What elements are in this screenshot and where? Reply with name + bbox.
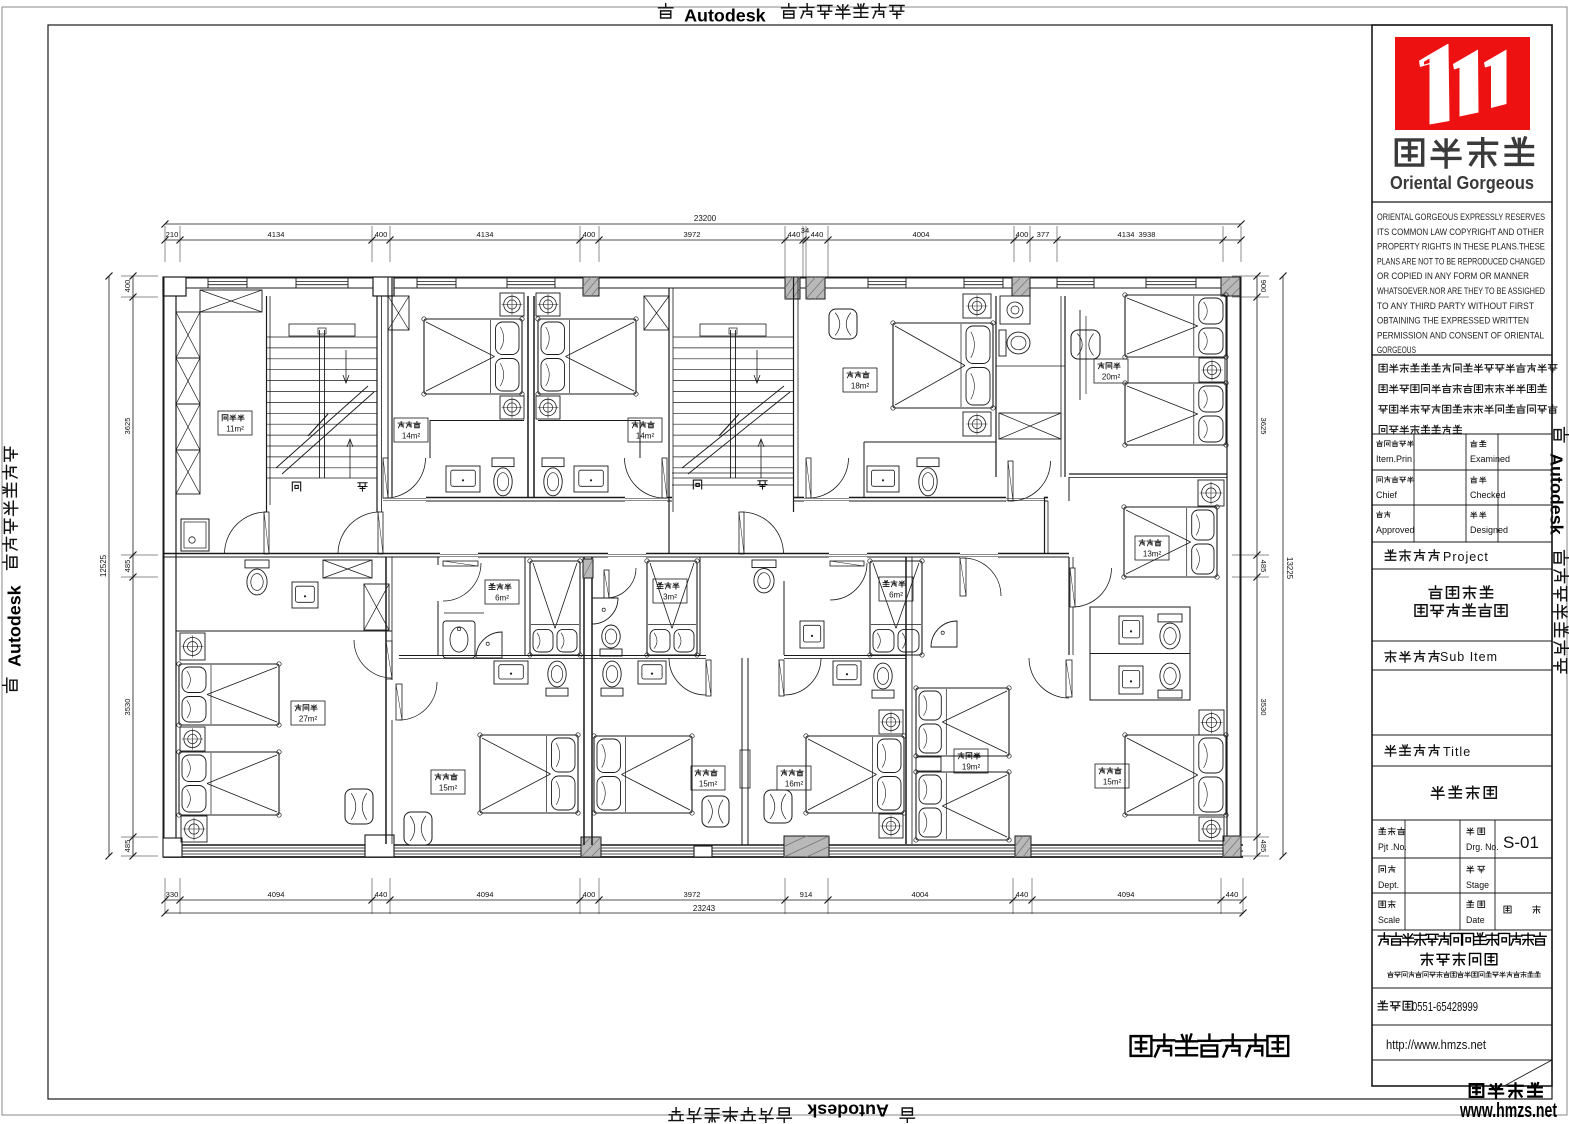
svg-text:4094: 4094: [1118, 890, 1135, 899]
svg-text:440: 440: [811, 230, 824, 239]
svg-text:ITS COMMON LAW COPYRIGHT AND O: ITS COMMON LAW COPYRIGHT AND OTHER: [1377, 227, 1544, 237]
svg-text:Pjt .No.: Pjt .No.: [1378, 842, 1407, 852]
svg-text:20m²: 20m²: [1102, 373, 1121, 382]
svg-text:OR COPIED IN ANY FORM OR MANNE: OR COPIED IN ANY FORM OR MANNER: [1377, 271, 1529, 281]
svg-text:Examined: Examined: [1470, 454, 1510, 464]
svg-text:Autodesk: Autodesk: [684, 5, 766, 25]
svg-text:TO ANY THIRD PARTY WITHOUT FIR: TO ANY THIRD PARTY WITHOUT FIRST: [1377, 301, 1535, 311]
svg-text:Drg. No.: Drg. No.: [1466, 842, 1499, 852]
svg-text:Autodesk: Autodesk: [1547, 453, 1567, 535]
svg-text:Scale: Scale: [1378, 915, 1400, 925]
svg-text:6m²: 6m²: [889, 591, 903, 600]
svg-text:3972: 3972: [684, 230, 701, 239]
svg-text:34: 34: [801, 226, 809, 235]
svg-text:4134: 4134: [1118, 230, 1135, 239]
svg-text:23200: 23200: [694, 214, 717, 223]
svg-text:PERMISSION AND CONSENT OF ORIE: PERMISSION AND CONSENT OF ORIENTAL: [1377, 330, 1544, 340]
svg-text:440: 440: [375, 890, 388, 899]
svg-text:23243: 23243: [693, 904, 716, 913]
svg-text:3530: 3530: [1259, 699, 1268, 716]
svg-text:0551-65428999: 0551-65428999: [1412, 999, 1478, 1014]
svg-text:3625: 3625: [123, 418, 132, 435]
svg-text:485: 485: [123, 560, 132, 573]
svg-text:Autodesk: Autodesk: [807, 1101, 889, 1121]
svg-text:Oriental Gorgeous: Oriental Gorgeous: [1390, 173, 1534, 193]
svg-text:4094: 4094: [477, 890, 494, 899]
svg-text:330: 330: [166, 890, 179, 899]
svg-text:210: 210: [166, 230, 179, 239]
svg-text:GORGEOUS: GORGEOUS: [1377, 345, 1416, 355]
svg-text:13225: 13225: [1285, 557, 1294, 580]
svg-text:440: 440: [1226, 890, 1239, 899]
svg-text:400: 400: [123, 280, 132, 293]
svg-text:377: 377: [1037, 230, 1050, 239]
svg-text:15m²: 15m²: [439, 784, 458, 793]
svg-text:PLANS ARE NOT TO BE REPRODUCED: PLANS ARE NOT TO BE REPRODUCED CHANGED: [1377, 256, 1545, 266]
svg-text:400: 400: [375, 230, 388, 239]
svg-text:400: 400: [583, 230, 596, 239]
svg-text:400: 400: [1016, 230, 1029, 239]
svg-text:914: 914: [800, 890, 813, 899]
svg-text:6m²: 6m²: [495, 594, 509, 603]
svg-text:12525: 12525: [99, 554, 108, 577]
svg-text:Stage: Stage: [1466, 880, 1489, 890]
svg-text:Autodesk: Autodesk: [4, 585, 24, 667]
svg-text:16m²: 16m²: [785, 780, 804, 789]
svg-text:OBTAINING THE EXPRESSED WRITTE: OBTAINING THE EXPRESSED WRITTEN: [1377, 316, 1529, 326]
svg-text:Date: Date: [1466, 915, 1485, 925]
svg-text:13m²: 13m²: [1143, 550, 1162, 559]
svg-text:3m²: 3m²: [663, 593, 677, 602]
svg-text:485: 485: [1259, 560, 1268, 573]
svg-text:Project: Project: [1443, 550, 1489, 564]
svg-text:27m²: 27m²: [299, 715, 318, 724]
svg-text:4134: 4134: [268, 230, 285, 239]
svg-text:http://www.hmzs.net: http://www.hmzs.net: [1386, 1037, 1486, 1052]
svg-text:Dept.: Dept.: [1378, 880, 1399, 890]
svg-text:Item.Prin: Item.Prin: [1376, 454, 1412, 464]
svg-text:PROPERTY RIGHTS IN THESE PLANS: PROPERTY RIGHTS IN THESE PLANS.THESE: [1377, 242, 1545, 252]
svg-text:3530: 3530: [123, 699, 132, 716]
svg-text:4094: 4094: [268, 890, 285, 899]
svg-text:19m²: 19m²: [962, 763, 981, 772]
svg-text:440: 440: [1016, 890, 1029, 899]
svg-text:S-01: S-01: [1503, 833, 1539, 852]
svg-text:485: 485: [1259, 840, 1268, 853]
svg-text:Approved: Approved: [1376, 525, 1415, 535]
svg-text:Title: Title: [1443, 745, 1471, 759]
svg-text:14m²: 14m²: [636, 432, 655, 441]
svg-text:4004: 4004: [913, 230, 930, 239]
svg-text:440: 440: [788, 230, 801, 239]
svg-text:3938: 3938: [1139, 230, 1156, 239]
svg-text:400: 400: [583, 890, 596, 899]
svg-text:3972: 3972: [684, 890, 701, 899]
svg-text:Designed: Designed: [1470, 525, 1508, 535]
svg-text:4134: 4134: [477, 230, 494, 239]
svg-text:www.hmzs.net: www.hmzs.net: [1459, 1100, 1557, 1122]
svg-text:Chief: Chief: [1376, 490, 1398, 500]
svg-text:ORIENTAL GORGEOUS EXPRESSLY RE: ORIENTAL GORGEOUS EXPRESSLY RESERVES: [1377, 212, 1545, 222]
svg-text:3625: 3625: [1259, 418, 1268, 435]
svg-text:15m²: 15m²: [699, 780, 718, 789]
svg-text:4004: 4004: [912, 890, 929, 899]
svg-text:Checked: Checked: [1470, 490, 1506, 500]
svg-text:14m²: 14m²: [402, 432, 421, 441]
svg-text:900: 900: [1259, 280, 1268, 293]
svg-text:Sub Item: Sub Item: [1440, 650, 1498, 664]
svg-text:WHATSOEVER.NOR ARE THEY TO BE: WHATSOEVER.NOR ARE THEY TO BE ASSIGHED: [1377, 286, 1545, 296]
svg-text:15m²: 15m²: [1103, 778, 1122, 787]
svg-text:11m²: 11m²: [226, 425, 244, 434]
svg-text:485: 485: [123, 840, 132, 853]
svg-text:18m²: 18m²: [851, 382, 870, 391]
